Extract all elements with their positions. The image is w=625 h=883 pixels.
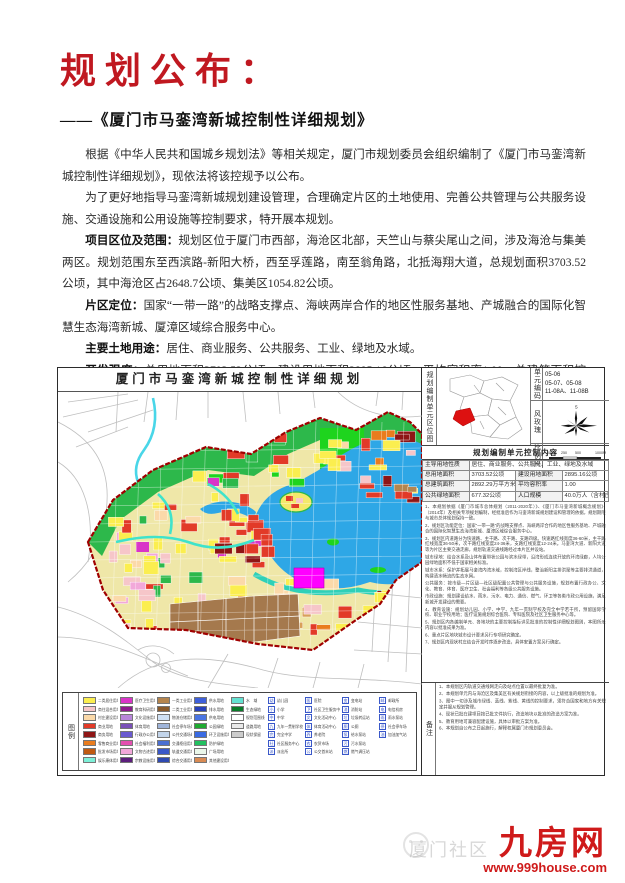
legend-item: 完完全中学 xyxy=(268,731,303,738)
plan-sheet-right: 规划编制单元区位图 xyxy=(422,368,609,775)
legend-item: 娱乐康体用地 xyxy=(83,757,118,764)
legend-symbol-icon: 养 xyxy=(305,731,312,738)
unit-code: 11-08A、11-08B xyxy=(545,389,602,397)
legend-item: 社会停车场用地 xyxy=(157,723,192,730)
legend-item: 文文化活动中心 xyxy=(305,714,340,721)
legend-item-label: 幼儿园 xyxy=(277,698,288,704)
legend-swatch xyxy=(231,697,244,704)
legend-item: 行政办公用地 xyxy=(120,731,155,738)
note-line: 1、本规划依据《厦门市城市总体规划（2011-2020年）》、《厦门市马銮湾新城… xyxy=(425,505,606,522)
legend-item-label: 体育用地 xyxy=(135,723,150,729)
note-line: 3、规划区内道路分为快速路、主干路、次干路、支路四级。快速路红线宽度36-60米… xyxy=(425,537,606,554)
special-parcel xyxy=(294,568,324,588)
legend-symbol-icon: 九 xyxy=(268,723,275,730)
legend-swatch xyxy=(157,723,170,730)
legend-item-label: 消防站 xyxy=(351,706,362,712)
page-subtitle: ——《厦门市马銮湾新城控制性详细规划》 xyxy=(60,108,625,130)
legend-item-label: 中学 xyxy=(277,715,284,721)
legend-symbol-icon: 变 xyxy=(342,697,349,704)
legend-symbol-icon: 农 xyxy=(305,740,312,747)
legend-item-label: 村庄建设用地 xyxy=(98,715,118,721)
legend-item-label: 社区服务中心 xyxy=(277,740,299,746)
legend-item: 水 域 xyxy=(231,697,266,704)
legend-item-label: 供电用地 xyxy=(209,715,224,721)
legend-swatch xyxy=(194,731,207,738)
control-table-title: 规划编制单元控制内容 xyxy=(422,446,609,460)
remark-line: 4、现状已批在建项目按已批文件执行，改造地块以批准的改造方案为准。 xyxy=(439,712,606,718)
legend-item: 供电用地 xyxy=(194,714,229,721)
table-value: 40.0万人（含村庄人口4万人） xyxy=(562,491,609,501)
table-value: 3703.52公顷 xyxy=(469,471,516,481)
legend-item: 雨雨水泵站 xyxy=(379,714,414,721)
legend-item-label: 规划范围线 xyxy=(246,715,265,721)
legend-item: 轨道交通用地 xyxy=(157,748,192,755)
legend-item-label: 雨水泵站 xyxy=(388,715,403,721)
legend-symbol-icon: 幼 xyxy=(268,697,275,704)
legend-item-label: 二类居住用地 xyxy=(98,698,118,704)
legend-item: 宗教设施用地 xyxy=(120,757,155,764)
legend-item: 电电信机房 xyxy=(379,706,414,713)
remarks-side-label: 备注 xyxy=(422,683,436,775)
legend-swatch xyxy=(120,706,133,713)
legend-item-label: 社会停车场用地 xyxy=(172,723,192,729)
body-paragraphs: 根据《中华人民共和国城乡规划法》等相关规定，厦门市规划委员会组织编制了《厦门市马… xyxy=(62,144,586,403)
legend-item-label: 派出所 xyxy=(277,749,288,755)
legend-swatch xyxy=(120,748,133,755)
legend-item: 小小学 xyxy=(268,706,303,713)
planning-map xyxy=(58,392,421,688)
page-title: 规划公布： xyxy=(60,42,625,94)
legend-symbol-icon: 电 xyxy=(379,706,386,713)
legend-swatch xyxy=(83,706,96,713)
legend-item: 派派出所 xyxy=(268,748,303,755)
legend-symbol-icon: 公 xyxy=(305,748,312,755)
legend-swatch xyxy=(120,740,133,747)
legend-item-label: 宗教设施用地 xyxy=(135,757,155,763)
legend-item: 污污水泵站 xyxy=(342,740,377,747)
legend-item-label: 加油加气站 xyxy=(388,732,407,738)
unit-code: 05-07、05-08 xyxy=(545,380,602,388)
legend-item: 广场用地 xyxy=(194,748,229,755)
legend-symbol-icon: 厕 xyxy=(342,723,349,730)
legend-swatch xyxy=(120,714,133,721)
table-label: 公共绿地面积 xyxy=(423,491,470,501)
legend-item: 村庄建设用地 xyxy=(83,714,118,721)
legend-item: 社会福利用地 xyxy=(120,740,155,747)
unit-codes: 05-0605-07、05-0811-08A、11-08B xyxy=(543,368,609,400)
legend-item-label: 排水用地 xyxy=(209,706,224,712)
legend-item-label: 污水泵站 xyxy=(351,740,366,746)
legend-item: 防护绿地 xyxy=(194,740,229,747)
location-minimap xyxy=(437,368,531,445)
legend-swatch xyxy=(120,757,133,764)
legend-item-label: 公厕 xyxy=(351,723,358,729)
legend-column: 医医院卫社区卫生服务中心文文化活动中心体体育活动中心养养老院农农贸市场公公交首末… xyxy=(305,697,340,768)
legend-item: 二类居住用地 xyxy=(83,697,118,704)
plan-sheet-left: 厦门市马銮湾新城控制性详细规划 xyxy=(58,368,422,775)
legend-swatch xyxy=(231,714,244,721)
legend-item: 供水用地 xyxy=(194,697,229,704)
legend-item-label: 环卫设施用地 xyxy=(209,732,229,738)
note-line: 公共服务：按市级—片区级—社区级配置公共管理与公共服务设施，规划布置行政办公、文… xyxy=(425,581,606,593)
unit-code-cell: 单元编码 05-0605-07、05-0811-08A、11-08B xyxy=(531,368,609,401)
legend-item: 文化设施用地 xyxy=(120,714,155,721)
legend-swatch xyxy=(157,706,170,713)
legend-column: 变变电站消消防站垃垃圾转运站厕公厕泵给水泵站污污水泵站燃燃气调压站 xyxy=(342,697,377,768)
legend-item: 公园绿地 xyxy=(194,723,229,730)
announcement-page: 规划公布： ——《厦门市马銮湾新城控制性详细规划》 根据《中华人民共和国城乡规划… xyxy=(0,0,625,883)
legend-symbol-icon: 卫 xyxy=(305,706,312,713)
legend-item-label: 行政办公用地 xyxy=(135,732,155,738)
legend-item: 厕公厕 xyxy=(342,723,377,730)
legend-item: 综合交通用地 xyxy=(157,757,192,764)
map-title: 厦门市马銮湾新城控制性详细规划 xyxy=(58,368,421,392)
legend-item: 商业用地 xyxy=(83,723,118,730)
legend-swatch xyxy=(231,731,244,738)
legend-swatch xyxy=(157,697,170,704)
table-value: 677.32公顷 xyxy=(469,491,516,501)
legend-symbol-icon: 雨 xyxy=(379,714,386,721)
legend-item-label: 养老院 xyxy=(314,732,325,738)
legend-item-label: 娱乐康体用地 xyxy=(98,757,118,763)
unit-code: 05-06 xyxy=(545,371,602,379)
legend-symbol-icon: 社 xyxy=(268,740,275,747)
table-label: 主导用地性质 xyxy=(423,461,470,471)
legend-item: 养养老院 xyxy=(305,731,340,738)
note-line: 城市绿地：结合水系及山体布置带状公园与滨水绿带，沿湾形成连续开放的环湾绿廊，人均… xyxy=(425,555,606,567)
legend-item: 燃燃气调压站 xyxy=(342,748,377,755)
windrose-icon: 5 xyxy=(548,402,604,442)
legend-symbol-icon: 污 xyxy=(342,740,349,747)
legend-item: 公共交通场站用地 xyxy=(157,731,192,738)
planning-map-svg xyxy=(58,392,422,688)
legend-symbol-icon: 医 xyxy=(305,697,312,704)
legend-column: 一类工业用地二类工业用地物流仓储用地社会停车场用地公共交通场站用地交通枢纽用地轨… xyxy=(157,697,192,768)
legend-swatch xyxy=(231,706,244,713)
note-line: 5、规划区内各编制单元、各地块的主要控制指标详见批准的控制性详细规划图则，本图所… xyxy=(425,621,606,633)
table-value: 居住、商业服务、公共服务、工业、绿地及水域 xyxy=(469,461,609,471)
remark-line: 6、本规划自公布之日起施行，解释权属厦门市规划委员会。 xyxy=(439,727,606,733)
legend-item: 邮邮政所 xyxy=(379,697,414,704)
site-url-link[interactable]: www.999house.com xyxy=(387,860,607,875)
legend-item-label: 医疗卫生用地 xyxy=(135,698,155,704)
legend-item-label: 公共交通场站用地 xyxy=(172,732,192,738)
legend-item: 一类工业用地 xyxy=(157,697,192,704)
legend-item: 生态绿地 xyxy=(231,706,266,713)
location-side-label: 规划编制单元区位图 xyxy=(422,368,437,445)
legend-column: 二类居住用地商住混合用地村庄建设用地商业用地商务用地零售商业用地批发市场用地娱乐… xyxy=(83,697,118,768)
legend-item-label: 商务用地 xyxy=(98,732,113,738)
legend: 图例 二类居住用地商住混合用地村庄建设用地商业用地商务用地零售商业用地批发市场用… xyxy=(62,692,417,771)
legend-item: 农农贸市场 xyxy=(305,740,340,747)
legend-item: 变变电站 xyxy=(342,697,377,704)
remark-line: 5、教育用地可兼容配建设施，具体以审批方案为准。 xyxy=(439,720,606,726)
legend-column: 邮邮政所电电信机房雨雨水泵站停社会停车场油加油加气站 xyxy=(379,697,414,768)
legend-item: 体育用地 xyxy=(120,723,155,730)
windrose-cell: 风玫瑰 5 xyxy=(531,401,609,444)
legend-swatch xyxy=(120,731,133,738)
remark-line: 2、本规划单元内与海沧区及集美区有关规划衔接的内容，以上级批准的规划为准。 xyxy=(439,692,606,698)
legend-item-label: 完全中学 xyxy=(277,732,292,738)
legend-swatch xyxy=(157,731,170,738)
legend-item: 消消防站 xyxy=(342,706,377,713)
minimap-svg xyxy=(440,371,528,443)
legend-item-label: 文化活动中心 xyxy=(314,715,336,721)
legend-swatch xyxy=(194,723,207,730)
legend-item-label: 社会停车场 xyxy=(388,723,407,729)
legend-item-label: 防护绿地 xyxy=(209,740,224,746)
legend-item: 环卫设施用地 xyxy=(194,731,229,738)
legend-item: 医疗卫生用地 xyxy=(120,697,155,704)
table-value: 1.00 xyxy=(562,481,609,491)
legend-item: 道路用地 xyxy=(231,723,266,730)
legend-item-label: 医院 xyxy=(314,698,321,704)
legend-symbol-icon: 消 xyxy=(342,706,349,713)
legend-item-label: 现状保留 xyxy=(246,732,261,738)
legend-side-label: 图例 xyxy=(63,693,79,770)
legend-item: 九九年一贯制学校 xyxy=(268,723,303,730)
legend-item-label: 供水用地 xyxy=(209,698,224,704)
location-panel: 规划编制单元区位图 xyxy=(422,368,609,446)
note-line: 4、教育设施：规划幼儿园、小学、中学、九年一贯制学校及完全中学若干所，预留国际学… xyxy=(425,608,606,620)
legend-symbol-icon: 燃 xyxy=(342,748,349,755)
legend-item: 商住混合用地 xyxy=(83,706,118,713)
legend-swatch xyxy=(83,748,96,755)
paragraph: 根据《中华人民共和国城乡规划法》等相关规定，厦门市规划委员会组织编制了《厦门市马… xyxy=(62,144,586,187)
legend-swatch xyxy=(83,740,96,747)
legend-item-label: 商住混合用地 xyxy=(98,706,118,712)
note-line: 7、规划区内现状村庄结合开发时序逐步改造，具体安置方案另行确定。 xyxy=(425,641,606,647)
remark-line: 1、本规划区内轨道交通线网走向及站点位置以最终批复为准。 xyxy=(439,685,606,691)
legend-symbol-icon: 派 xyxy=(268,748,275,755)
legend-symbol-icon: 文 xyxy=(305,714,312,721)
legend-swatch xyxy=(157,748,170,755)
legend-symbol-icon: 体 xyxy=(305,723,312,730)
legend-item: 油加油加气站 xyxy=(379,731,414,738)
legend-item: 医医院 xyxy=(305,697,340,704)
legend-item-label: 物流仓储用地 xyxy=(172,715,192,721)
windrose-label: 风玫瑰 xyxy=(531,401,543,443)
plan-notes: 1、本规划依据《厦门市城市总体规划（2011-2020年）》、《厦门市马銮湾新城… xyxy=(422,502,609,683)
unit-code-label: 单元编码 xyxy=(531,368,543,400)
legend-item: 卫社区卫生服务中心 xyxy=(305,706,340,713)
legend-swatch xyxy=(194,697,207,704)
legend-symbol-icon: 小 xyxy=(268,706,275,713)
paragraph: 主要土地用途：居住、商业服务、公共服务、工业、绿地及水域。 xyxy=(62,338,586,360)
legend-item-label: 道路用地 xyxy=(246,723,261,729)
legend-swatch xyxy=(157,740,170,747)
header: 规划公布： ——《厦门市马銮湾新城控制性详细规划》 xyxy=(60,42,625,130)
table-label: 建设用地面积 xyxy=(516,471,563,481)
legend-item: 中中学 xyxy=(268,714,303,721)
legend-item-label: 教育科研用地 xyxy=(135,706,155,712)
legend-item-label: 体育活动中心 xyxy=(314,723,336,729)
legend-symbol-icon: 完 xyxy=(268,731,275,738)
legend-item: 幼幼儿园 xyxy=(268,697,303,704)
legend-item-label: 给水泵站 xyxy=(351,732,366,738)
legend-symbol-icon: 油 xyxy=(379,731,386,738)
legend-item-label: 广场用地 xyxy=(209,749,224,755)
legend-symbol-icon: 中 xyxy=(268,714,275,721)
legend-item-label: 交通枢纽用地 xyxy=(172,740,192,746)
table-value: 2895.16公顷 xyxy=(562,471,609,481)
paragraph: 片区定位：国家“一带一路”的战略支撑点、海峡两岸合作的地区性服务基地、产城融合的… xyxy=(62,295,586,338)
remark-line: 3、图中一切涉及城市绿线、蓝线、紫线、黄线的控制要求，须符合国家和地方有关规定并… xyxy=(439,699,606,711)
legend-item-label: 文物古迹用地 xyxy=(135,749,155,755)
legend-swatch xyxy=(194,714,207,721)
windrose-north-label: 5 xyxy=(575,405,578,411)
legend-item-label: 农贸市场 xyxy=(314,740,329,746)
control-table: 主导用地性质居住、商业服务、公共服务、工业、绿地及水域总用地面积3703.52公… xyxy=(422,460,609,502)
legend-item: 文物古迹用地 xyxy=(120,748,155,755)
legend-item: 社社区服务中心 xyxy=(268,740,303,747)
watermark: 厦门社区 九房网 www.999house.com xyxy=(387,826,607,875)
legend-item-label: 社区卫生服务中心 xyxy=(314,706,340,712)
legend-item: 公公交首末站 xyxy=(305,748,340,755)
legend-item: 零售商业用地 xyxy=(83,740,118,747)
note-line: 6、重点片区地块城市设计要求另行专项研究确定。 xyxy=(425,634,606,640)
legend-item-label: 零售商业用地 xyxy=(98,740,118,746)
note-line: 市政设施：规划建设给水、雨水、污水、电力、通信、燃气、环卫等各类市政公用设施，满… xyxy=(425,594,606,606)
legend-item-label: 九年一贯制学校 xyxy=(277,723,303,729)
legend-swatch xyxy=(231,723,244,730)
legend-symbol-icon: 邮 xyxy=(379,697,386,704)
legend-swatch xyxy=(194,748,207,755)
paragraph: 为了更好地指导马銮湾新城规划建设管理，合理确定片区的土地使用、完善公共管理与公共… xyxy=(62,187,586,230)
legend-item: 批发市场用地 xyxy=(83,748,118,755)
legend-item: 交通枢纽用地 xyxy=(157,740,192,747)
special-parcel xyxy=(136,542,149,552)
legend-item-label: 电信机房 xyxy=(388,706,403,712)
table-label: 总建筑面积 xyxy=(423,481,470,491)
legend-swatch xyxy=(194,706,207,713)
remarks-panel: 备注 1、本规划区内轨道交通线网走向及站点位置以最终批复为准。2、本规划单元内与… xyxy=(422,683,609,775)
legend-item-label: 一类工业用地 xyxy=(172,698,192,704)
legend-item-label: 文化设施用地 xyxy=(135,715,155,721)
legend-item-label: 变电站 xyxy=(351,698,362,704)
legend-swatch xyxy=(194,757,207,764)
site-brand: 九房网 xyxy=(387,826,607,859)
legend-item: 停社会停车场 xyxy=(379,723,414,730)
legend-symbol-icon: 垃 xyxy=(342,714,349,721)
legend-item-label: 垃圾转运站 xyxy=(351,715,370,721)
legend-item-label: 商业用地 xyxy=(98,723,113,729)
legend-item-label: 二类工业用地 xyxy=(172,706,192,712)
legend-item: 规划范围线 xyxy=(231,714,266,721)
remarks-lines: 1、本规划区内轨道交通线网走向及站点位置以最终批复为准。2、本规划单元内与海沧区… xyxy=(439,685,606,733)
table-label: 人口规模 xyxy=(516,491,563,501)
legend-grid: 二类居住用地商住混合用地村庄建设用地商业用地商务用地零售商业用地批发市场用地娱乐… xyxy=(79,693,416,770)
legend-symbol-icon: 泵 xyxy=(342,731,349,738)
legend-item-label: 小学 xyxy=(277,706,284,712)
legend-column: 医疗卫生用地教育科研用地文化设施用地体育用地行政办公用地社会福利用地文物古迹用地… xyxy=(120,697,155,768)
legend-item-label: 综合交通用地 xyxy=(172,757,192,763)
legend-item: 教育科研用地 xyxy=(120,706,155,713)
table-value: 2892.29万平方米 xyxy=(469,481,516,491)
legend-item: 现状保留 xyxy=(231,731,266,738)
legend-item-label: 其他建设用地 xyxy=(209,757,229,763)
legend-symbol-icon: 停 xyxy=(379,723,386,730)
legend-swatch xyxy=(83,714,96,721)
table-label: 平均容积率 xyxy=(516,481,563,491)
legend-item: 垃垃圾转运站 xyxy=(342,714,377,721)
legend-item: 物流仓储用地 xyxy=(157,714,192,721)
legend-item-label: 邮政所 xyxy=(388,698,399,704)
legend-swatch xyxy=(157,714,170,721)
paragraph: 项目区位及范围：规划区位于厦门市西部，海沧区北部，天竺山与蔡尖尾山之间，涉及海沧… xyxy=(62,230,586,295)
legend-item-label: 公园绿地 xyxy=(209,723,224,729)
legend-swatch xyxy=(120,697,133,704)
location-meta: 单元编码 05-0605-07、05-0811-08A、11-08B 风玫瑰 5 xyxy=(531,368,609,445)
note-line: 城市水系：保护并拓展马銮湾内湾水域，控制湾区岸线，整治新阳主排洪渠等主要排洪通道… xyxy=(425,568,606,580)
legend-swatch xyxy=(120,723,133,730)
legend-swatch xyxy=(83,723,96,730)
legend-item-label: 水 域 xyxy=(246,698,257,704)
legend-item: 二类工业用地 xyxy=(157,706,192,713)
islet xyxy=(327,539,339,546)
legend-item: 商务用地 xyxy=(83,731,118,738)
legend-swatch xyxy=(83,697,96,704)
legend-swatch xyxy=(157,757,170,764)
note-line: 2、规划区功能定位：国家“一带一路”的战略支撑点、海峡两岸合作的地区性服务基地、… xyxy=(425,524,606,536)
legend-column: 水 域生态绿地规划范围线道路用地现状保留 xyxy=(231,697,266,768)
legend-item-label: 燃气调压站 xyxy=(351,749,370,755)
legend-item: 泵给水泵站 xyxy=(342,731,377,738)
legend-column: 供水用地排水用地供电用地公园绿地环卫设施用地防护绿地广场用地其他建设用地 xyxy=(194,697,229,768)
legend-swatch xyxy=(83,757,96,764)
legend-swatch xyxy=(194,740,207,747)
legend-item-label: 社会福利用地 xyxy=(135,740,155,746)
legend-item-label: 生态绿地 xyxy=(246,706,261,712)
legend-column: 幼幼儿园小小学中中学九九年一贯制学校完完全中学社社区服务中心派派出所 xyxy=(268,697,303,768)
table-label: 总用地面积 xyxy=(423,471,470,481)
legend-item: 其他建设用地 xyxy=(194,757,229,764)
legend-item-label: 公交首末站 xyxy=(314,749,333,755)
legend-item-label: 轨道交通用地 xyxy=(172,749,192,755)
legend-item: 排水用地 xyxy=(194,706,229,713)
legend-swatch xyxy=(83,731,96,738)
legend-item: 体体育活动中心 xyxy=(305,723,340,730)
plan-sheet: 厦门市马銮湾新城控制性详细规划 xyxy=(57,367,605,776)
legend-item-label: 批发市场用地 xyxy=(98,749,118,755)
